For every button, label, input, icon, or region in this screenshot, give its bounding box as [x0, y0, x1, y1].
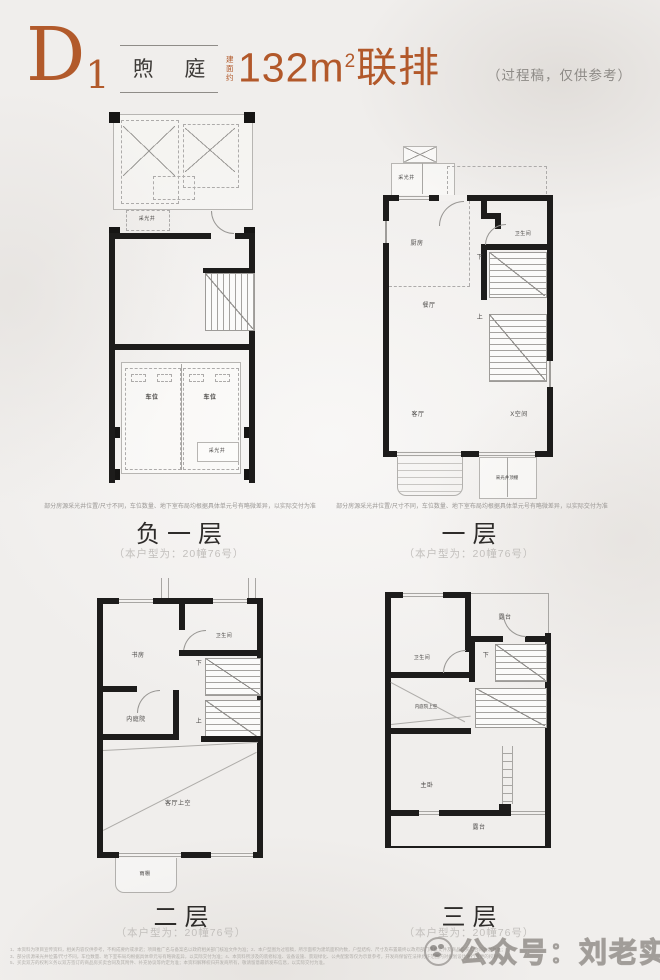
floor2-caption: （本户型为：20幢76号） [81, 925, 281, 940]
wheel-stop [215, 374, 230, 382]
basement-caption: （本户型为：20幢76号） [79, 546, 279, 561]
riser-line [168, 578, 169, 598]
watermark: 公众号：刘老实选房 [424, 931, 660, 971]
study-wall [179, 598, 185, 630]
riser-line [161, 578, 162, 598]
draft-note: （过程稿，仅供参考） [487, 64, 632, 84]
floor2-plan: 卫生间 书房 下 上 内庭院 客厅上空 雨棚 [95, 578, 267, 894]
area-type: 联排 [356, 45, 440, 91]
floor1-caption: （本户型为：20幢76号） [369, 546, 569, 561]
kitchen-boundary [389, 286, 470, 287]
wall-pier [499, 804, 511, 816]
stair-diagonal [495, 644, 545, 680]
terrace-door-arc [503, 614, 526, 637]
ramp-equipment [153, 176, 195, 200]
study-label: 书房 [113, 652, 163, 661]
hatch-box [403, 146, 437, 163]
floor3-plan: 露台 卫生间 内庭院上空 下 主卧 露台 [383, 578, 555, 860]
terrace-edge [548, 593, 549, 633]
void-line [103, 752, 257, 831]
column [244, 112, 255, 123]
window-line [419, 811, 439, 812]
wechat-account-logo-icon [424, 937, 453, 966]
void-label: 客厅上空 [153, 800, 203, 809]
window-line [385, 221, 387, 243]
courtyard-wall [385, 728, 471, 734]
window-line [511, 811, 545, 812]
canopy-label: 雨棚 [115, 870, 175, 879]
lightwell-divider [422, 163, 423, 194]
window-line [211, 853, 253, 854]
floor1-title: 一层 [369, 514, 569, 549]
stair-diagonal [475, 688, 545, 726]
window-line [213, 599, 247, 600]
wall [109, 233, 115, 483]
watermark-text: 公众号：刘老实选房 [459, 931, 660, 971]
void-line [103, 742, 258, 751]
courtyard-wall [173, 690, 179, 740]
bath-wall [179, 650, 263, 656]
stair-diagonal [489, 252, 545, 296]
ladder [502, 746, 513, 804]
bath-label: 卫生间 [397, 654, 447, 663]
wall [439, 810, 499, 816]
lightwell-label: 采光井 [391, 174, 422, 183]
window-line [549, 361, 551, 387]
wheel-stop [131, 374, 146, 382]
terrace-boundary [385, 846, 551, 848]
door-arc [439, 201, 464, 226]
stair-up-label: 上 [473, 314, 487, 323]
void-line [391, 716, 471, 725]
living-label: 客厅 [398, 411, 438, 420]
master-label: 主卧 [405, 782, 449, 791]
floorplan-flyer-page: D1 煦 庭 建面约 132m2联排 （过程稿，仅供参考） 采光井 [0, 0, 660, 980]
window-line [119, 856, 181, 857]
window-line [479, 452, 535, 453]
terrace-steps [397, 457, 463, 496]
lightwell-top-label: 采光井 [126, 215, 168, 224]
stair-up-label: 上 [193, 718, 205, 727]
window-line [119, 599, 153, 600]
unit-type-code: D1 [26, 18, 110, 112]
basement-title: 负一层 [79, 514, 279, 549]
window-line [213, 602, 247, 603]
ramp-cross-right [185, 128, 235, 172]
project-name: 煦 庭 [120, 45, 218, 93]
terrace-bottom-label: 露台 [459, 824, 499, 833]
stair-diagonal [205, 700, 259, 738]
unit-type-letter: D [26, 12, 85, 98]
window-line [397, 455, 461, 456]
basement-plan: 采光井 车位 车位 采光井 [93, 112, 265, 492]
stair-diagonal [205, 658, 259, 694]
window-line [511, 814, 545, 815]
area-headline: 132m2联排 [238, 40, 440, 90]
courtyard-door-arc [137, 690, 160, 713]
area-prefix: 建面约 [226, 55, 235, 82]
wheel-stop [189, 374, 204, 382]
kitchen-label: 厨房 [397, 240, 437, 249]
unit-type-number: 1 [85, 53, 109, 97]
terrace-edge [469, 593, 549, 594]
garage-wall [109, 344, 255, 350]
area-superscript: 2 [345, 51, 357, 72]
window-line [399, 199, 429, 200]
wall [385, 810, 419, 816]
window-line [119, 853, 181, 854]
stair-diagonal [205, 273, 253, 329]
wall [97, 598, 103, 858]
area-value: 132m [238, 45, 345, 91]
window-line [211, 856, 253, 857]
parking-bay-left [125, 368, 181, 470]
lightwell-cover-label: 采光井顶棚 [479, 473, 535, 482]
courtyard-wall [97, 686, 137, 692]
courtyard-label: 内庭院 [111, 716, 161, 725]
window-line [397, 452, 461, 453]
xspace-label: X空间 [499, 411, 539, 420]
riser-line [248, 578, 249, 598]
courtyard-void-label: 内庭院上空 [395, 702, 457, 711]
window-line [119, 602, 153, 603]
ramp-cross-left [123, 126, 175, 176]
riser-line [255, 578, 256, 598]
terrace-wall [525, 636, 551, 642]
lightwell-bottom-label: 采光井 [197, 447, 237, 456]
floor1-disclaimer: 部分房源采光井位置/尺寸不同，车位数量、地下室布局均根据具体单元号有略微差异，以… [316, 501, 628, 510]
bath-label: 卫生间 [199, 632, 249, 641]
stair-diagonal [489, 314, 545, 380]
window-line [399, 196, 429, 197]
basement-disclaimer: 部分房源采光井位置/尺寸不同，车位数量、地下室布局均根据具体单元号有略微差异，以… [24, 501, 336, 510]
bath-label: 卫生间 [495, 230, 551, 239]
window-line [403, 593, 443, 594]
bath-wall [481, 195, 487, 215]
stair-wall [469, 642, 475, 682]
kitchen-boundary [469, 201, 470, 286]
parking-right-label: 车位 [183, 394, 237, 403]
entry-door-arc [211, 211, 234, 234]
floor1-plan: 采光井 卫生间 下 上 厨房 餐厅 [383, 146, 555, 498]
column [109, 112, 120, 123]
parking-left-label: 车位 [125, 394, 179, 403]
window-line [419, 814, 439, 815]
wheel-stop [157, 374, 172, 382]
garage-divider [181, 364, 182, 470]
window-line [479, 455, 535, 456]
stair-down-label: 下 [479, 652, 493, 661]
stair-down-label: 下 [473, 254, 487, 263]
stair-down-label: 下 [193, 660, 205, 669]
courtyard-wall [97, 734, 179, 740]
dining-label: 餐厅 [409, 302, 449, 311]
window-line [403, 596, 443, 597]
